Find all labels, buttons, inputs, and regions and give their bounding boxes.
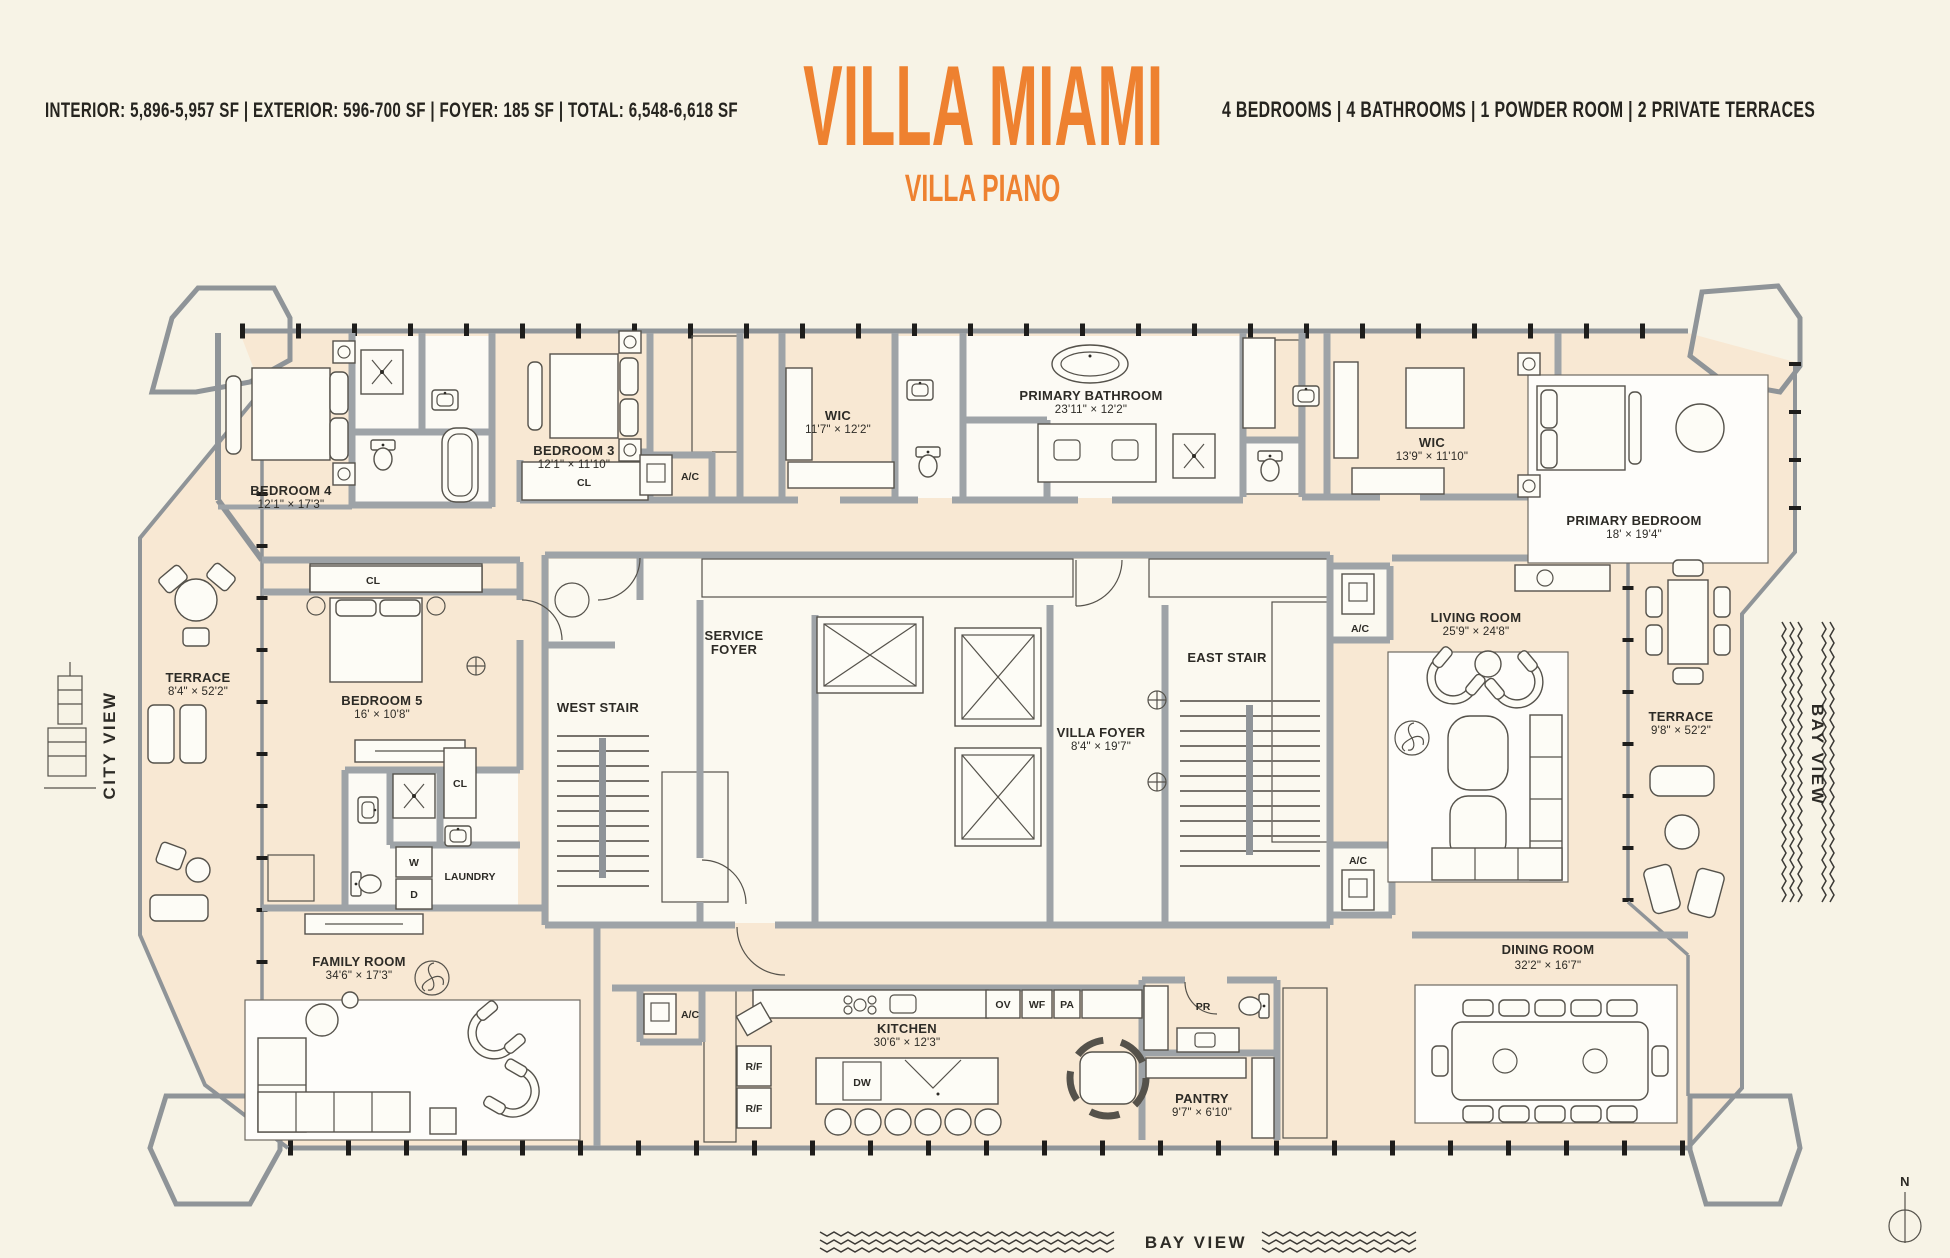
fridge-label: R/F [746, 1061, 764, 1073]
terrace-left-dims: 8'4" × 52'2" [168, 686, 228, 698]
wine-fridge-label: WF [1029, 999, 1046, 1011]
wic-1-label: WIC [825, 408, 851, 423]
villa-foyer-dims: 8'4" × 19'7" [1071, 741, 1131, 753]
terrace-right-dims: 9'8" × 52'2" [1651, 725, 1711, 737]
ac-label: A/C [681, 471, 700, 483]
primary-bedroom-label: PRIMARY BEDROOM [1566, 513, 1701, 528]
wic-2-dims: 13'9" × 11'10" [1396, 451, 1468, 463]
west-stair-label: WEST STAIR [557, 700, 640, 715]
living-room-label: LIVING ROOM [1431, 610, 1522, 625]
bedroom-5-label: BEDROOM 5 [341, 693, 422, 708]
bay-view-bottom-label: BAY VIEW [1145, 1233, 1247, 1252]
family-room-dims: 34'6" × 17'3" [326, 970, 393, 982]
bedroom-3-dims: 12'1" × 11'10" [538, 459, 610, 471]
ac-label: A/C [1351, 623, 1370, 635]
city-skyline-icon [44, 662, 96, 788]
primary-bedroom-dims: 18' × 19'4" [1606, 529, 1662, 541]
kitchen-label: KITCHEN [877, 1021, 937, 1036]
primary-bedroom: PRIMARY BEDROOM 18' × 19'4" [1515, 353, 1768, 591]
terrace-left-label: TERRACE [166, 670, 231, 685]
villa-foyer-label: VILLA FOYER [1057, 725, 1146, 740]
closet-label: CL [577, 477, 592, 489]
service-foyer-label-2: FOYER [711, 642, 758, 657]
floor-plan-drawing: WEST STAIR EAST STAIR VILLA FOYER 8'4" ×… [0, 0, 1950, 1258]
dishwasher-label: DW [853, 1077, 871, 1089]
north-label: N [1900, 1174, 1910, 1189]
kitchen-dims: 30'6" × 12'3" [874, 1037, 941, 1049]
family-room-label: FAMILY ROOM [312, 954, 406, 969]
ac-label: A/C [681, 1009, 700, 1021]
pantry-label: PANTRY [1175, 1091, 1229, 1106]
wic-2-label: WIC [1419, 435, 1445, 450]
oven-label: OV [995, 999, 1010, 1011]
bedroom-4-label: BEDROOM 4 [250, 483, 332, 498]
terrace-right-label: TERRACE [1649, 709, 1714, 724]
pantry-cab-label: PA [1060, 999, 1074, 1011]
ac-label: A/C [1349, 855, 1368, 867]
pantry-dims: 9'7" × 6'10" [1172, 1107, 1232, 1119]
closet-label: CL [366, 575, 381, 587]
east-stair-label: EAST STAIR [1187, 650, 1267, 665]
living-room-dims: 25'9" × 24'8" [1443, 626, 1510, 638]
dining-room-label: DINING ROOM [1502, 942, 1595, 957]
bedroom-4-dims: 12'1" × 17'3" [258, 499, 325, 511]
dryer-label: D [410, 889, 418, 901]
laundry-label: LAUNDRY [445, 871, 496, 883]
dining-room-dims: 32'2" × 16'7" [1515, 960, 1582, 972]
bedroom-3-label: BEDROOM 3 [533, 443, 614, 458]
pr-label: PR [1196, 1001, 1211, 1013]
city-view-label: CITY VIEW [100, 690, 119, 799]
primary-bath-label: PRIMARY BATHROOM [1019, 388, 1162, 403]
bay-view-right: BAY VIEW [1782, 622, 1834, 902]
washer-label: W [409, 857, 419, 869]
fridge-label: R/F [746, 1103, 764, 1115]
bay-view-right-label: BAY VIEW [1808, 704, 1827, 806]
closet-label: CL [453, 778, 468, 790]
wic-1-dims: 11'7" × 12'2" [805, 424, 871, 436]
north-arrow: N [1889, 1174, 1921, 1243]
bedroom-5-dims: 16' × 10'8" [354, 709, 410, 721]
primary-bath-dims: 23'11" × 12'2" [1055, 404, 1127, 416]
floor-plan-page: INTERIOR: 5,896-5,957 SF | EXTERIOR: 596… [0, 0, 1950, 1258]
service-foyer-label-1: SERVICE [705, 628, 764, 643]
city-view: CITY VIEW [44, 662, 119, 800]
bay-view-bottom: BAY VIEW [820, 1232, 1416, 1252]
